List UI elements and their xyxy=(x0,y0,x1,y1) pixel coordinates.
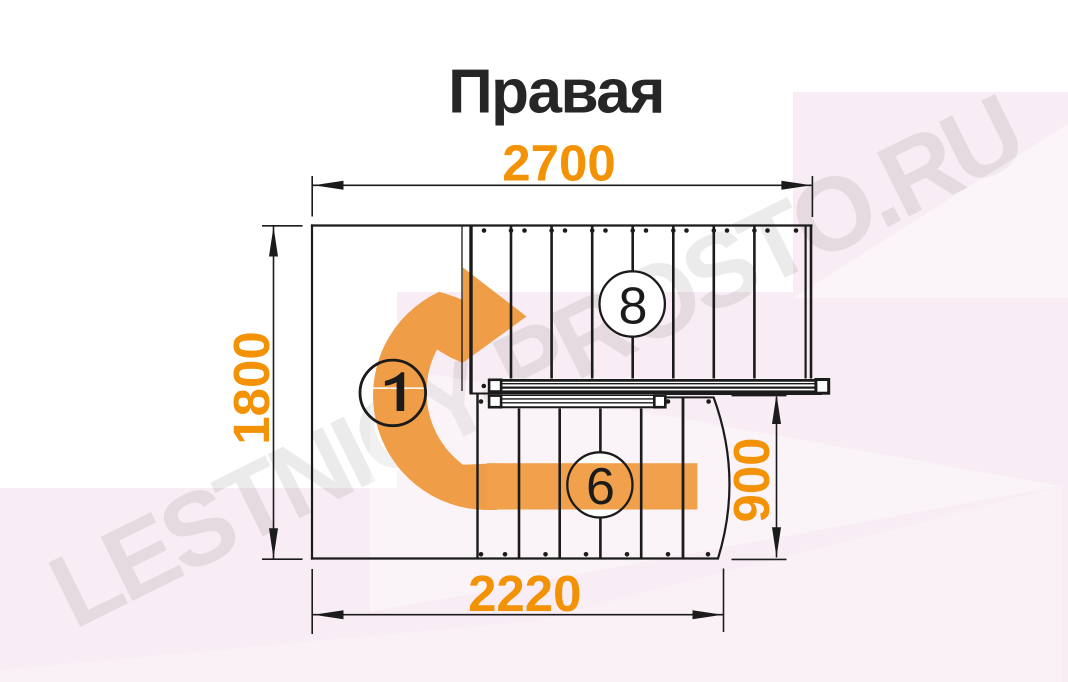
svg-text:8: 8 xyxy=(619,277,648,335)
svg-text:1800: 1800 xyxy=(223,331,280,444)
svg-text:900: 900 xyxy=(723,437,780,522)
svg-text:Правая: Правая xyxy=(448,58,664,127)
svg-text:6: 6 xyxy=(586,458,615,516)
svg-text:2220: 2220 xyxy=(468,565,581,622)
svg-text:2700: 2700 xyxy=(502,135,615,192)
